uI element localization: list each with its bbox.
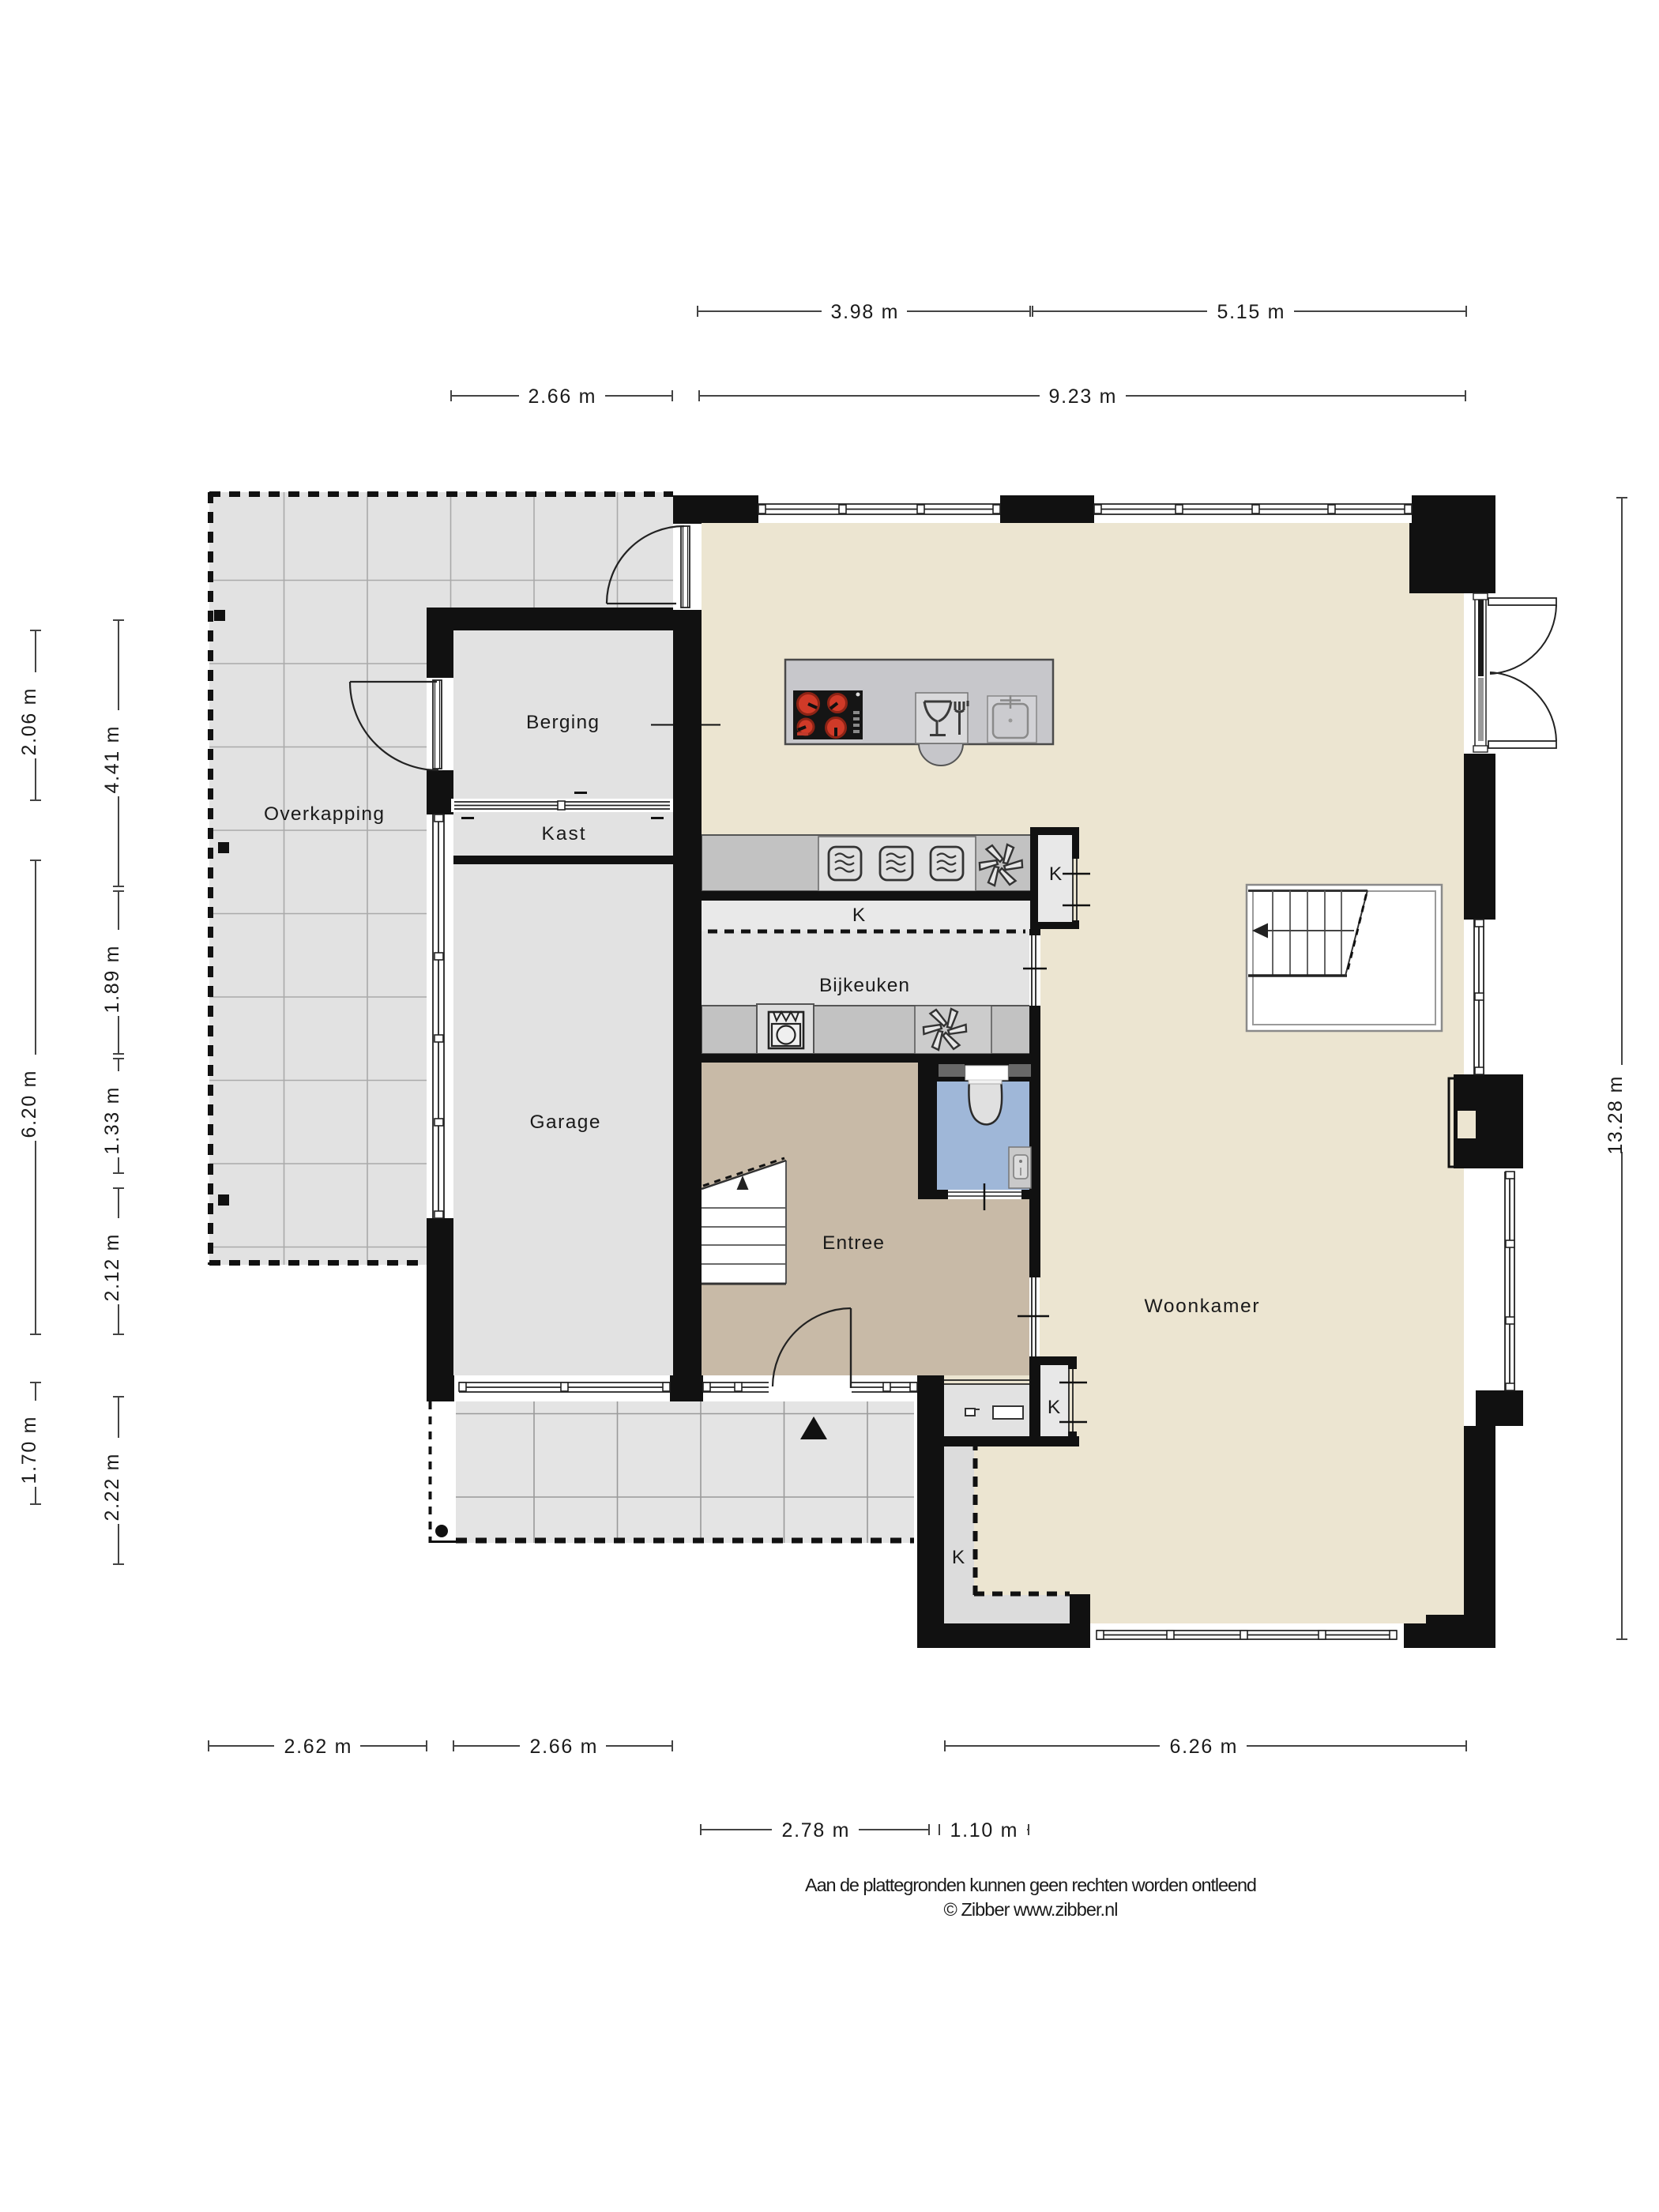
svg-text:K: K xyxy=(852,905,866,926)
svg-text:2.22 m: 2.22 m xyxy=(101,1454,123,1522)
svg-text:Entree: Entree xyxy=(822,1232,884,1254)
svg-text:13.28 m: 13.28 m xyxy=(1604,1077,1627,1155)
svg-text:Garage: Garage xyxy=(530,1112,600,1133)
svg-text:1.10 m: 1.10 m xyxy=(950,1819,1018,1841)
svg-text:3.98 m: 3.98 m xyxy=(831,301,898,323)
svg-text:Berging: Berging xyxy=(526,712,599,733)
svg-text:4.41 m: 4.41 m xyxy=(101,727,123,794)
svg-text:Woonkamer: Woonkamer xyxy=(1145,1296,1259,1317)
svg-text:9.23 m: 9.23 m xyxy=(1049,386,1116,408)
svg-text:© Zibber www.zibber.nl: © Zibber www.zibber.nl xyxy=(944,1899,1119,1920)
svg-text:K: K xyxy=(1048,1397,1061,1418)
svg-text:1.70 m: 1.70 m xyxy=(18,1417,40,1484)
svg-text:1.33 m: 1.33 m xyxy=(101,1088,123,1155)
svg-text:5.15 m: 5.15 m xyxy=(1217,301,1285,323)
svg-text:2.06 m: 2.06 m xyxy=(18,689,40,756)
svg-text:2.12 m: 2.12 m xyxy=(101,1235,123,1302)
svg-text:Overkapping: Overkapping xyxy=(264,803,384,825)
svg-text:2.62 m: 2.62 m xyxy=(284,1736,352,1758)
svg-text:K: K xyxy=(1049,863,1063,885)
svg-text:1.89 m: 1.89 m xyxy=(101,946,123,1014)
svg-text:Aan de plattegronden kunnen ge: Aan de plattegronden kunnen geen rechten… xyxy=(805,1875,1257,1895)
svg-text:6.20 m: 6.20 m xyxy=(18,1071,40,1138)
svg-text:K: K xyxy=(952,1547,965,1568)
svg-text:2.66 m: 2.66 m xyxy=(529,386,596,408)
svg-text:2.78 m: 2.78 m xyxy=(782,1819,849,1841)
svg-text:2.66 m: 2.66 m xyxy=(530,1736,597,1758)
svg-text:Bijkeuken: Bijkeuken xyxy=(819,975,909,996)
svg-text:6.26 m: 6.26 m xyxy=(1170,1736,1237,1758)
